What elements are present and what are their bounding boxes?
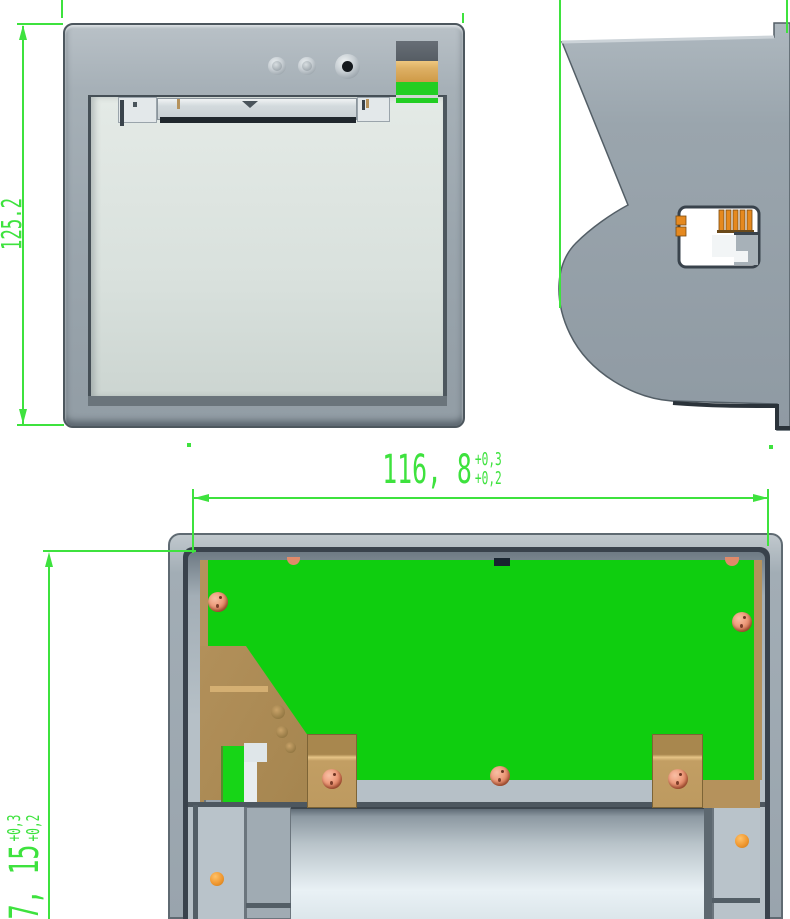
stray-green-dot-2 [769, 445, 773, 449]
left-clip-dot [133, 102, 137, 107]
cutout-step-edge [734, 232, 758, 235]
dim-front-height: 125.2 [0, 198, 26, 250]
feed-button-center [342, 61, 353, 72]
right-tan-tick [366, 99, 369, 108]
stray-green-dot-1 [187, 443, 191, 447]
printer-technical-drawing: 125.2 116, 8 +0,3 +0,2 7, 15 +0,3 +0, [0, 0, 790, 919]
right-clip-mark [362, 100, 365, 110]
right-under-pcb-strip [703, 780, 760, 808]
dim-front-height-ext-bottom [17, 424, 64, 426]
left-tan-tick [177, 99, 180, 109]
dim-cutout-width-line [194, 497, 768, 499]
dim-ext-tick-front-top [61, 0, 63, 18]
dim-front-height-ext-top [17, 23, 63, 25]
front-printer-door [88, 95, 447, 397]
chevron-down-icon [242, 101, 258, 108]
rear-connector-housing [396, 41, 438, 61]
dim-cutout-height-line [48, 556, 50, 919]
pcb-screw-center [490, 766, 510, 786]
dimension-arrow-up-icon [19, 25, 27, 40]
dimension-arrow-up-icon-2 [45, 552, 53, 567]
dim-cutout-width-value: 116, 8 [382, 450, 472, 490]
rear-pcb-edge [396, 82, 438, 103]
paper-exit-slot [160, 117, 356, 123]
dim-cutout-height-ext-top [43, 550, 196, 552]
bracket-screw-left [322, 769, 342, 789]
front-door-bottom-shadow [88, 396, 447, 406]
mechanism-cylinder-3 [285, 742, 296, 753]
mechanism-cylinder-2 [276, 726, 288, 738]
pcb-left-edge-strip [200, 560, 208, 648]
side-view [545, 0, 790, 460]
dim-ext-tick-front-right [462, 13, 464, 23]
right-rail-pin [735, 834, 749, 848]
mechanism-green-connector [221, 746, 244, 804]
platen-roller [291, 807, 706, 919]
dim-cutout-height-value: 7, 15 [5, 845, 45, 919]
right-rail-step-line [712, 898, 760, 903]
mechanism-white-notch [244, 743, 267, 762]
cutout-step-white-2 [734, 251, 748, 262]
dim-cutout-width: 116, 8 +0,3 +0,2 [382, 450, 502, 490]
cutout-step-white [712, 235, 736, 257]
dim-ext-tick-side-left [559, 0, 561, 308]
dimension-arrow-right-icon [753, 494, 768, 502]
left-rail-step-line [246, 903, 291, 908]
connector-pin-coil [719, 210, 752, 232]
bracket-screw-right [668, 769, 688, 789]
rear-connector-pins [396, 61, 438, 82]
dimension-arrow-left-icon [194, 494, 209, 502]
door-edge-over-pcb [396, 95, 438, 98]
dim-cutout-width-ext-left [192, 489, 194, 553]
dim-front-height-value: 125.2 [0, 198, 26, 250]
dimension-arrow-down-icon [19, 409, 27, 424]
pcb-screw-top-right [732, 612, 752, 632]
left-clip-mark [120, 100, 124, 126]
right-rail-seam [704, 805, 712, 919]
dim-cutout-width-ext-right [767, 489, 769, 546]
dim-ext-tick-side-right [786, 0, 788, 33]
dim-cutout-width-tolerance: +0,3 +0,2 [475, 451, 502, 489]
side-bottom-edge [673, 403, 790, 428]
left-rail [198, 807, 246, 919]
pcb-right-edge-strip [754, 560, 762, 780]
dim-cutout-height-tolerance: +0,3 +0,2 [6, 815, 44, 842]
pcb-top-notch [494, 558, 510, 566]
connector-pin-left-2 [676, 227, 686, 236]
mechanism-cylinder-1 [271, 705, 285, 719]
indicator-led-2-center [302, 61, 312, 71]
mechanism-ridge [210, 686, 268, 692]
dim-cutout-height: 7, 15 +0,3 +0,2 [5, 815, 45, 919]
left-rail-pin [210, 872, 224, 886]
indicator-led-1-center [272, 61, 282, 71]
connector-pin-left-1 [676, 216, 686, 225]
pcb-screw-top-left [208, 592, 228, 612]
